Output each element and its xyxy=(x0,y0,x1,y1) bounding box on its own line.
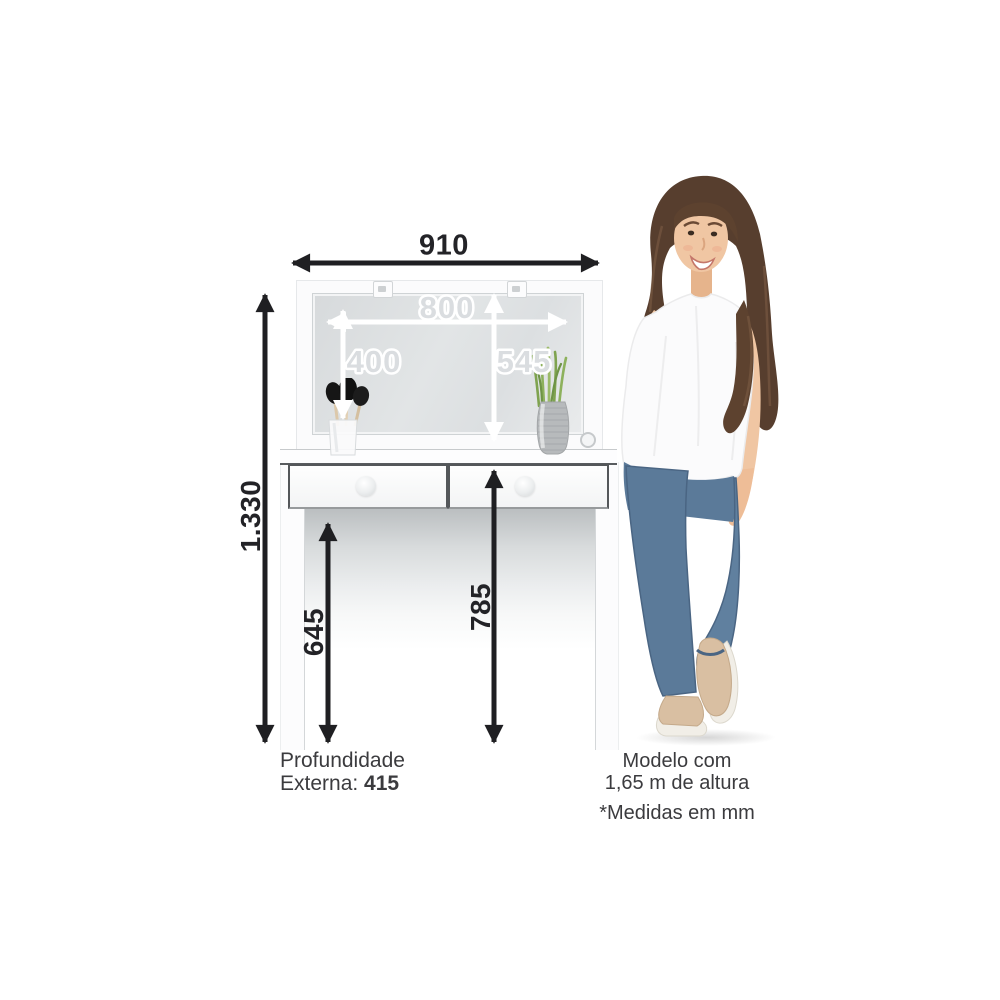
product-dimension-diagram: 800 400 545 910 1.330 645 785 Profundida… xyxy=(0,0,1000,1000)
clearance-label: 645 xyxy=(298,608,330,656)
mirror-clip-detail xyxy=(378,286,386,292)
units-note: *Medidas em mm xyxy=(599,802,755,825)
mirror-clip-right xyxy=(507,281,527,298)
makeup-brushes-decor xyxy=(320,378,378,458)
total-height-label: 1.330 xyxy=(235,480,267,553)
total-width-label: 910 xyxy=(419,230,469,263)
model-jeans-back-leg xyxy=(626,466,696,696)
tabletop-height-label: 785 xyxy=(465,583,497,631)
depth-caption-line1: Profundidade xyxy=(280,749,405,772)
under-desk-shadow xyxy=(303,507,596,650)
depth-caption: Profundidade Externa: 415 xyxy=(280,749,405,795)
model-caption: Modelo com 1,65 m de altura xyxy=(605,750,750,794)
mirror-clip-detail xyxy=(512,286,520,292)
vase-highlight xyxy=(542,404,544,448)
drawer-knob-right xyxy=(515,476,535,496)
mirror-clip-left xyxy=(373,281,393,298)
plant-decor xyxy=(525,344,575,456)
model-caption-line1: Modelo com xyxy=(623,750,732,772)
depth-caption-line2: Externa: xyxy=(280,772,364,795)
plant-leaves xyxy=(533,348,566,406)
side-hook xyxy=(580,432,596,448)
drawer-knob-left xyxy=(356,476,376,496)
model-caption-line2: 1,65 m de altura xyxy=(605,772,750,794)
model-shoe-left xyxy=(659,696,704,726)
depth-value: 415 xyxy=(364,772,399,795)
model-figure xyxy=(596,166,810,758)
